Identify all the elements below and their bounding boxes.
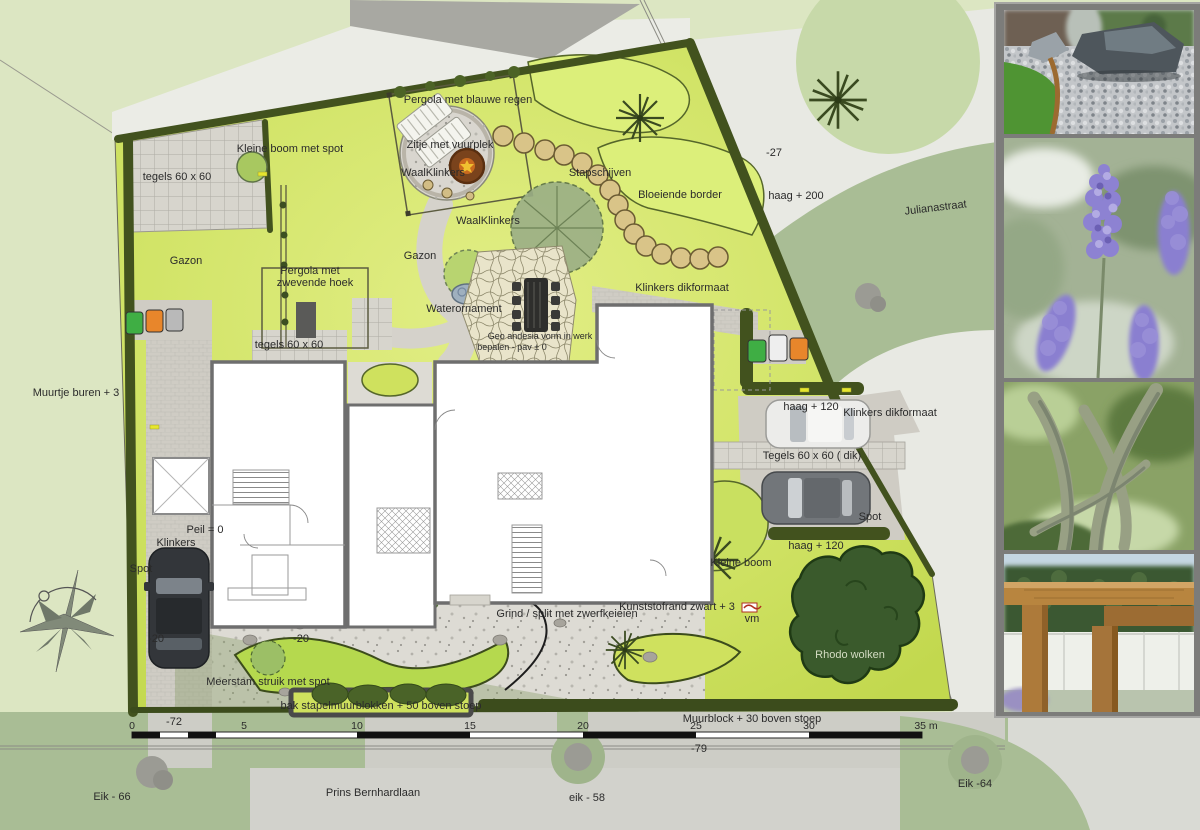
garden-design-sheet: Pergola met blauwe regen Kleine boom met… bbox=[0, 0, 1200, 830]
label-klinkers: Klinkers bbox=[156, 537, 196, 549]
palm-tree-2 bbox=[809, 71, 867, 129]
label-waterornament: Waterornament bbox=[426, 303, 501, 315]
court-planting-blob bbox=[362, 364, 418, 396]
street-tree-trunk-2 bbox=[870, 296, 886, 312]
car-dark bbox=[144, 548, 214, 668]
scale-tick-10: 10 bbox=[351, 720, 363, 732]
photo-lavender bbox=[984, 138, 1200, 385]
scale-tick-25: 25 bbox=[690, 720, 702, 732]
driveway-crossing-mid bbox=[365, 712, 557, 770]
scale-tick-30: 30 bbox=[803, 720, 815, 732]
label-eik-58: eik - 58 bbox=[569, 792, 605, 804]
label-prins-bernhardlaan: Prins Bernhardlaan bbox=[326, 787, 420, 799]
prins-bernhardlaan-road bbox=[250, 768, 1005, 830]
scale-tick-15: 15 bbox=[464, 720, 476, 732]
hedge-parking-south bbox=[768, 527, 890, 540]
label-spot-b: Spot bbox=[130, 563, 153, 575]
label-rhodo-wolken: Rhodo wolken bbox=[815, 649, 885, 661]
label-tegels-dik: Tegels 60 x 60 ( dik) bbox=[763, 450, 861, 462]
shrub-grind-2 bbox=[251, 641, 285, 675]
stairs-right-house bbox=[512, 525, 542, 593]
oak-66-trunk-2 bbox=[153, 770, 173, 790]
label-klinkers-dik-b: Klinkers dikformaat bbox=[843, 407, 937, 419]
label-min27: -27 bbox=[766, 147, 782, 159]
bathroom-right bbox=[498, 473, 542, 499]
label-meerstam: Meerstam struik met spot bbox=[206, 676, 329, 688]
label-kleine-boom: Kleine boom bbox=[710, 557, 771, 569]
label-kleine-boom-spot: Kleine boom met spot bbox=[237, 143, 343, 155]
label-geo-2: bepalen - pav ± 0 bbox=[477, 342, 547, 352]
hedge-west bbox=[128, 140, 133, 712]
scalebar bbox=[132, 732, 922, 738]
label-grind-split: Grind / split met zwerfkeieien bbox=[496, 608, 637, 620]
label-geo-1: Geo andesia vorm in werk bbox=[488, 331, 593, 341]
oak-58-trunk bbox=[564, 743, 592, 771]
label-min20-a: -20 bbox=[148, 633, 164, 645]
label-min20-b: -20 bbox=[293, 633, 309, 645]
label-tegels-top: tegels 60 x 60 bbox=[143, 171, 212, 183]
label-waalklinkers-b: WaalKlinkers bbox=[456, 215, 520, 227]
scale-tick-5: 5 bbox=[241, 720, 247, 732]
label-min72: -72 bbox=[166, 716, 182, 728]
label-muurtje-buren: Muurtje buren + 3 bbox=[33, 387, 120, 399]
kleine-boom-spot-tree bbox=[237, 152, 267, 182]
oak-64-trunk bbox=[961, 746, 989, 774]
pergola-tiles-grid bbox=[352, 298, 392, 350]
hedge-muurblock bbox=[478, 699, 958, 710]
stairs-connector bbox=[377, 508, 430, 553]
label-pergola-blauwe-regen: Pergola met blauwe regen bbox=[404, 94, 532, 106]
label-eik-66: Eik - 66 bbox=[93, 791, 130, 803]
label-peil-0: Peil = 0 bbox=[187, 524, 224, 536]
car-gray bbox=[762, 472, 870, 524]
label-spot-a: Spot bbox=[859, 511, 882, 523]
label-vm: vm bbox=[745, 613, 760, 625]
palm-tree-1 bbox=[616, 94, 664, 142]
scale-tick-35: 35 m bbox=[914, 720, 938, 732]
label-bloeiende-border: Bloeiende border bbox=[638, 189, 722, 201]
photo-panel bbox=[984, 2, 1200, 717]
label-tegels-mid: tegels 60 x 60 bbox=[255, 339, 324, 351]
label-pergola-zwevend-1: Pergola met bbox=[280, 265, 339, 277]
label-zitje-vuurplek: Zitje met vuurplek bbox=[407, 139, 494, 151]
label-gazon-a: Gazon bbox=[170, 255, 202, 267]
label-stapschijven: Stapschijven bbox=[569, 167, 631, 179]
label-haag-120-a: haag + 120 bbox=[783, 401, 838, 413]
label-waalklinkers-a: WaalKlinkers bbox=[401, 167, 465, 179]
stairs-left-house bbox=[233, 470, 289, 504]
label-min79: -79 bbox=[691, 743, 707, 755]
garden-plan-canvas: Pergola met blauwe regen Kleine boom met… bbox=[0, 0, 1200, 830]
scale-tick-0: 0 bbox=[129, 720, 135, 732]
photo-multistem-tree bbox=[989, 382, 1200, 564]
label-pergola-zwevend-2: zwevende hoek bbox=[277, 277, 354, 289]
label-gazon-b: Gazon bbox=[404, 250, 436, 262]
photo-wood-pergola bbox=[1000, 554, 1194, 712]
pergola-bench bbox=[296, 302, 316, 338]
label-eik-64: Eik -64 bbox=[958, 778, 992, 790]
label-haag-120-b: haag + 120 bbox=[788, 540, 843, 552]
grass-tuft bbox=[606, 631, 644, 669]
label-bak-stapel: bak stapelmuurblokken + 50 boven stoep bbox=[281, 700, 482, 712]
scale-tick-20: 20 bbox=[577, 720, 589, 732]
label-muurblock: Muurblock + 30 boven stoep bbox=[683, 713, 822, 725]
label-haag-200: haag + 200 bbox=[768, 190, 823, 202]
back-step bbox=[450, 595, 490, 605]
label-klinkers-dik-a: Klinkers dikformaat bbox=[635, 282, 729, 294]
photo-gravel-garden bbox=[1004, 2, 1194, 134]
waste-bins-left bbox=[126, 309, 183, 334]
